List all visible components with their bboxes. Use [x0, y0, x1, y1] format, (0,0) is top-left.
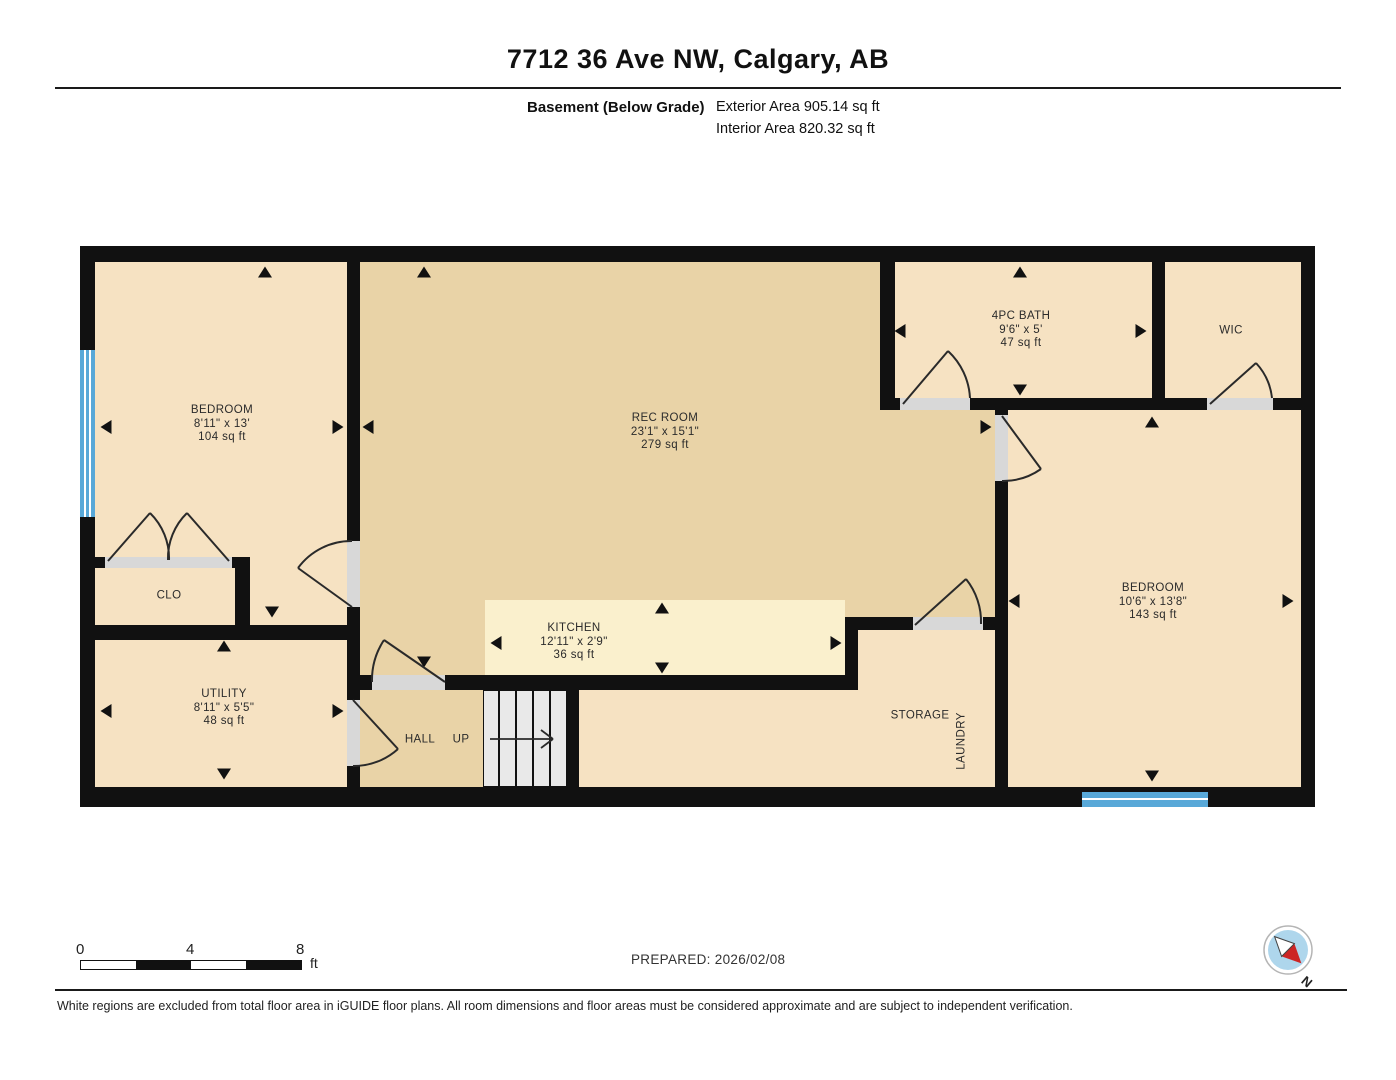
room-area: 279 sq ft: [631, 439, 699, 453]
label-utility: UTILITY 8'11" x 5'5" 48 sq ft: [194, 688, 255, 729]
dim-arrow-icon: [1136, 324, 1147, 338]
dim-arrow-icon: [333, 704, 344, 718]
scale-unit: ft: [310, 955, 318, 971]
room-area: 36 sq ft: [540, 649, 607, 663]
scale-label-8: 8: [296, 941, 304, 958]
room-area: 47 sq ft: [992, 337, 1051, 351]
interior-area-text: Interior Area 820.32 sq ft: [716, 121, 875, 137]
room-area: 143 sq ft: [1119, 609, 1187, 623]
dim-arrow-icon: [417, 267, 431, 278]
door-opening-storage: [913, 617, 983, 630]
dim-arrow-icon: [655, 603, 669, 614]
stair-tread: [498, 691, 500, 786]
stair-tread: [549, 691, 551, 786]
compass-north-label: N: [1299, 973, 1316, 991]
label-bedroom-left: BEDROOM 8'11" x 13' 104 sq ft: [191, 404, 253, 445]
room-dims: 10'6" x 13'8": [1119, 595, 1187, 609]
floorplan-page: 7712 36 Ave NW, Calgary, AB Basement (Be…: [0, 0, 1396, 1080]
room-name: REC ROOM: [631, 412, 699, 426]
staircase: [483, 690, 567, 787]
compass-icon: N: [1264, 926, 1315, 990]
room-name: 4PC BATH: [992, 310, 1051, 324]
door-opening-bedroom-left: [347, 541, 360, 607]
room-area: 48 sq ft: [194, 715, 255, 729]
room-storage-alcove: [858, 630, 995, 690]
dim-arrow-icon: [258, 267, 272, 278]
footer-divider: [55, 989, 1347, 991]
room-name: BEDROOM: [1119, 582, 1187, 596]
room-name: KITCHEN: [540, 622, 607, 636]
dim-arrow-icon: [1013, 267, 1027, 278]
room-name: BEDROOM: [191, 404, 253, 418]
dim-arrow-icon: [1013, 385, 1027, 396]
door-opening-closet: [105, 557, 232, 568]
door-opening-utility: [347, 700, 360, 766]
label-rec-room: REC ROOM 23'1" x 15'1" 279 sq ft: [631, 412, 699, 453]
room-dims: 12'11" x 2'9": [540, 635, 607, 649]
dim-arrow-icon: [1009, 594, 1020, 608]
dim-arrow-icon: [417, 657, 431, 668]
door-opening-bath: [900, 398, 970, 410]
scale-bar: [80, 960, 302, 970]
room-dims: 9'6" x 5': [992, 323, 1051, 337]
dim-arrow-icon: [655, 663, 669, 674]
dim-arrow-icon: [363, 420, 374, 434]
dim-arrow-icon: [217, 769, 231, 780]
room-rec-strip: [845, 600, 995, 617]
window-left: [80, 350, 95, 517]
label-wic: WIC: [1219, 324, 1243, 338]
room-dims: 23'1" x 15'1": [631, 425, 699, 439]
label-closet: CLO: [157, 589, 182, 603]
label-bedroom-right: BEDROOM 10'6" x 13'8" 143 sq ft: [1119, 582, 1187, 623]
room-area: 104 sq ft: [191, 431, 253, 445]
window-pane-line: [1082, 798, 1208, 800]
room-rec-main: [360, 262, 880, 600]
dim-arrow-icon: [333, 420, 344, 434]
dim-arrow-icon: [895, 324, 906, 338]
door-opening-bedroom-right: [995, 415, 1008, 481]
dim-arrow-icon: [981, 420, 992, 434]
stair-tread: [532, 691, 534, 786]
dim-arrow-icon: [265, 607, 279, 618]
door-opening-hall: [372, 675, 445, 690]
dim-arrow-icon: [491, 636, 502, 650]
page-title: 7712 36 Ave NW, Calgary, AB: [0, 44, 1396, 75]
window-pane-line: [84, 350, 86, 517]
disclaimer-text: White regions are excluded from total fl…: [57, 999, 1073, 1013]
exterior-area-text: Exterior Area 905.14 sq ft: [716, 99, 880, 115]
label-bath: 4PC BATH 9'6" x 5' 47 sq ft: [992, 310, 1051, 351]
window-pane-line: [89, 350, 91, 517]
label-storage: STORAGE: [891, 709, 950, 723]
prepared-date: PREPARED: 2026/02/08: [631, 952, 785, 967]
window-bottom: [1082, 792, 1208, 807]
header-divider: [55, 87, 1341, 89]
room-rec-east: [880, 410, 995, 600]
scale-label-0: 0: [76, 941, 84, 958]
room-dims: 8'11" x 5'5": [194, 701, 255, 715]
label-laundry: LAUNDRY: [955, 712, 969, 770]
dim-arrow-icon: [1145, 417, 1159, 428]
room-dims: 8'11" x 13': [191, 417, 253, 431]
dim-arrow-icon: [1145, 771, 1159, 782]
scale-label-4: 4: [186, 941, 194, 958]
floor-label: Basement (Below Grade): [527, 99, 705, 116]
label-up: UP: [453, 733, 470, 747]
door-opening-wic: [1207, 398, 1273, 410]
scale-segment: [246, 961, 301, 969]
room-name: UTILITY: [194, 688, 255, 702]
dim-arrow-icon: [101, 704, 112, 718]
dim-arrow-icon: [217, 641, 231, 652]
label-hall: HALL: [405, 733, 435, 747]
dim-arrow-icon: [101, 420, 112, 434]
label-kitchen: KITCHEN 12'11" x 2'9" 36 sq ft: [540, 622, 607, 663]
room-storage-corridor: [579, 690, 995, 787]
stair-tread: [515, 691, 517, 786]
scale-segment: [136, 961, 191, 969]
dim-arrow-icon: [831, 636, 842, 650]
dim-arrow-icon: [1283, 594, 1294, 608]
